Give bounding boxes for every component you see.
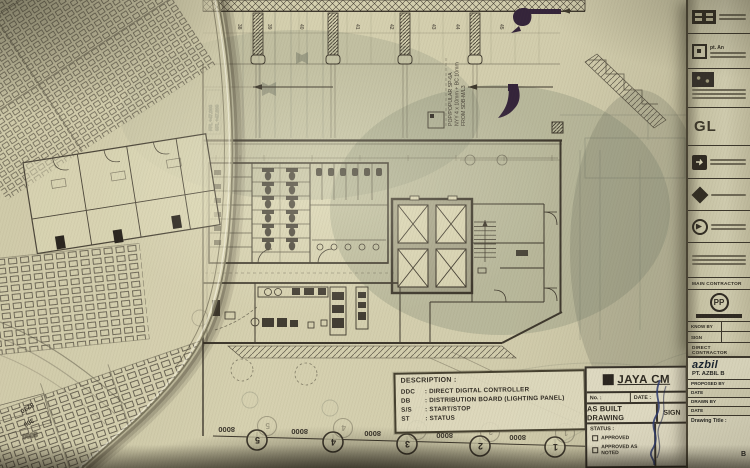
stamp-cell [688, 243, 750, 278]
svg-text:43: 43 [430, 24, 436, 30]
grid-bubble-label: 3 [405, 439, 410, 449]
description-box: DESCRIPTION : DDC: DIRECT DIGITAL CONTRO… [393, 369, 586, 434]
no-label: No. : [587, 393, 631, 402]
svg-text:40: 40 [298, 24, 304, 30]
drawing-title-label: Drawing Title :B [688, 415, 750, 468]
cable-note-line1: POP/POPULAR SP-6A [448, 72, 454, 126]
stamp-text-lines [711, 194, 746, 196]
stamp-cell [688, 69, 750, 108]
stamp-cell [688, 179, 750, 211]
stamp-cell: pt. An [688, 34, 750, 69]
date-label: DATE : [631, 393, 686, 402]
description-title: DESCRIPTION : [401, 374, 579, 384]
company-name: JAYA CM [617, 373, 670, 385]
jaya-logo-icon [602, 374, 613, 385]
pp-logo: PP [710, 293, 729, 312]
stamp-text-lines [710, 159, 746, 165]
diamond-logo-icon [692, 186, 709, 203]
hand-logo-icon [692, 155, 707, 170]
svg-text:8000: 8000 [291, 427, 308, 436]
svg-text:45: 45 [498, 24, 504, 30]
title-block: JAYA CM No. : DATE : AS BUILT DRAWING SI… [585, 366, 689, 468]
status-label: STATUS : [590, 426, 654, 432]
elevator-bank [392, 196, 472, 293]
stamp-strip: pt. An GL MAIN CONTRACTOR PP KNOW BY SIG… [686, 0, 750, 356]
date-label: DATE [688, 406, 750, 415]
circle-logo-icon [692, 219, 708, 235]
square-logo-icon [692, 44, 707, 59]
stamp-text-lines [719, 14, 746, 20]
cable-note-line3: FROM SDB-M/L3 [461, 85, 467, 126]
svg-text:38: 38 [236, 24, 242, 30]
sign-label: SIGN [658, 404, 686, 422]
stamp-text-lines [711, 224, 746, 230]
number-date-row: No. : DATE : [587, 393, 686, 405]
top-grid-numbers: 38 39 40 41 42 43 44 45 [236, 24, 504, 30]
date-label: DATE [688, 388, 750, 397]
grid-bubble-label: 1 [553, 442, 558, 452]
roll-seating-mid [0, 243, 150, 358]
stamp-cell [688, 0, 750, 34]
rolled-sheet: 8230 300 8000 [0, 0, 270, 468]
grid-bubble-label: 5 [255, 435, 260, 445]
direct-contractor-text: DIRECT CONTRACTOR [692, 345, 746, 355]
gl-logo: GL [692, 118, 746, 135]
entry-abbr: S/S [401, 405, 425, 415]
stamp-text-lines [710, 52, 746, 58]
svg-text:41: 41 [354, 24, 360, 30]
svg-text:8000: 8000 [509, 433, 526, 442]
grid-bubble-label: 2 [478, 441, 483, 451]
svg-text:4: 4 [341, 423, 346, 432]
azbil-title-block: azbil PT. AZBIL B PROPOSED BY DATE DRAWN… [686, 356, 750, 468]
building-blocks-logo-icon [692, 10, 716, 24]
stamp-cell [688, 211, 750, 243]
sign-area [656, 424, 686, 466]
stamp-cell [688, 146, 750, 179]
checkbox-icon [592, 447, 598, 453]
azbil-brand: azbil [688, 358, 750, 371]
svg-text:39: 39 [266, 24, 272, 30]
entry-def: : STATUS [425, 414, 455, 424]
azbil-company: PT. AZBIL B [688, 371, 750, 379]
stray-letter: B [741, 451, 746, 458]
status-option-label: APPROVED [601, 435, 629, 441]
status-section: STATUS : APPROVED APPROVED AS NOTED [587, 424, 686, 467]
status-options: STATUS : APPROVED APPROVED AS NOTED [587, 424, 656, 466]
stamp-cell: PP [688, 290, 750, 322]
status-option-approved-as-noted: APPROVED AS NOTED [592, 444, 654, 456]
drawing-type-row: AS BUILT DRAWING SIGN [587, 404, 686, 425]
know-by-sign-rows: KNOW BY SIGN [688, 322, 750, 343]
entry-def: : START/STOP [425, 405, 471, 415]
checkbox-icon [592, 435, 598, 441]
entry-abbr: ST [401, 415, 425, 425]
pp-logo-bar [696, 314, 742, 318]
title-block-header: JAYA CM [587, 368, 686, 394]
know-by-label: KNOW BY [688, 322, 722, 331]
svg-text:42: 42 [388, 24, 394, 30]
direct-contractor-label: DIRECT CONTRACTOR [688, 343, 750, 356]
stamp-text-lines [692, 89, 746, 104]
stamp-cell: GL [688, 108, 750, 146]
ornate-logo-icon [692, 72, 714, 87]
drawing-type: AS BUILT DRAWING [587, 404, 658, 422]
grid-bubble-label: 4 [331, 437, 336, 447]
drawn-by-label: DRAWN BY [688, 397, 750, 406]
cable-note-line2: NYY 4 x 10mm + BC 10mm [455, 62, 461, 126]
proposed-by-label: PROPOSED BY [688, 379, 750, 388]
main-contractor-label: MAIN CONTRACTOR [688, 278, 750, 290]
svg-text:8000: 8000 [218, 425, 235, 434]
status-option-label: APPROVED AS NOTED [601, 444, 654, 456]
know-by-row: KNOW BY [688, 322, 750, 332]
stamp-company-name: pt. An [710, 45, 746, 51]
ink-flag-mark [511, 8, 561, 33]
stamp-text-lines [692, 255, 746, 265]
svg-text:44: 44 [454, 24, 460, 30]
blueprint-photo: FFL +47.000 SFL +47.800 [0, 0, 750, 468]
sign-row-label: SIGN [688, 332, 722, 342]
svg-text:5: 5 [265, 421, 270, 430]
status-option-approved: APPROVED [592, 435, 654, 441]
entry-abbr: DB [401, 396, 425, 406]
main-contractor-text: MAIN CONTRACTOR [692, 281, 742, 286]
svg-text:8000: 8000 [364, 429, 381, 438]
drawing-title-text: Drawing Title : [691, 418, 727, 424]
entry-abbr: DDC [401, 387, 425, 397]
sign-row: SIGN [688, 332, 750, 342]
